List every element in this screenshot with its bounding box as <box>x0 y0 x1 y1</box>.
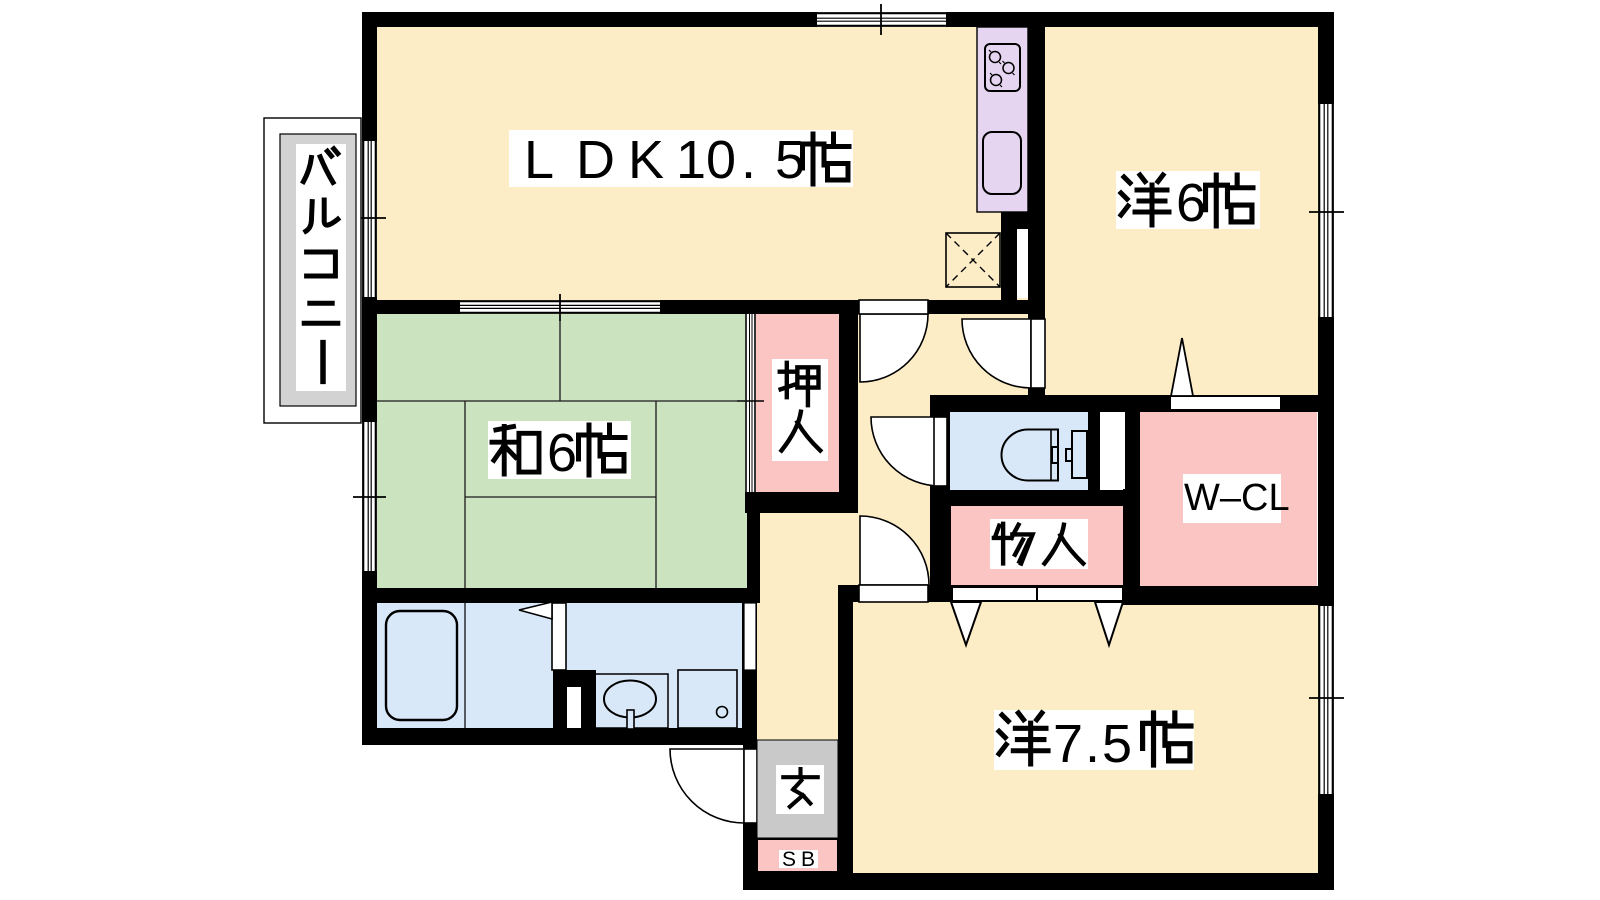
svg-text:SB: SB <box>782 848 820 871</box>
svg-text:6: 6 <box>547 423 577 483</box>
svg-text:W–CL: W–CL <box>1184 477 1290 519</box>
svg-text:7.5: 7.5 <box>1053 714 1134 774</box>
svg-text:6: 6 <box>1176 173 1206 233</box>
